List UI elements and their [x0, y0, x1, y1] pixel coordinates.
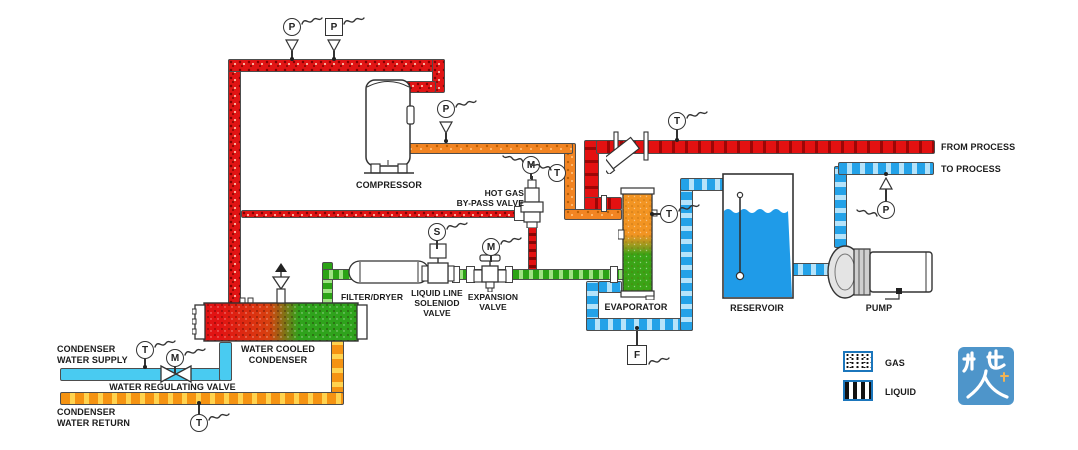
compressor: [362, 72, 418, 178]
gauge-stem: [174, 367, 176, 373]
condenser-return-label-line1: CONDENSER: [57, 407, 130, 418]
valve-motor: M: [166, 349, 184, 367]
gauge-letter: P: [289, 22, 296, 33]
capillary-squiggle: [446, 219, 468, 231]
brand-logo-calligraphy: [958, 347, 1014, 405]
condenser-return-label: CONDENSER WATER RETURN: [57, 407, 130, 429]
gauge-letter: T: [142, 345, 148, 356]
temperature-sensor: T: [660, 205, 678, 223]
gauge-letter: P: [331, 22, 338, 33]
pressure-gauge: P: [437, 100, 455, 118]
chiller-process-diagram: P P P M T S M T T P F T M: [0, 0, 1078, 450]
evaporator: [618, 186, 658, 300]
pressure-switch: P: [325, 18, 343, 36]
brand-logo: 机电人脉: [958, 347, 1014, 405]
capillary-squiggle: [686, 108, 708, 120]
suction-pipe-evaporator: [564, 209, 622, 220]
water-regulating-valve-label: WATER REGULATING VALVE: [105, 382, 240, 393]
condenser-label-line1: WATER COOLED: [236, 344, 320, 355]
capillary-squiggle: [856, 206, 878, 218]
gauge-stem: [636, 331, 638, 345]
gauge-stem: [885, 189, 887, 201]
gauge-connector-triangle: [327, 39, 341, 52]
capillary-squiggle: [208, 410, 230, 422]
capillary-squiggle: [154, 337, 176, 349]
pipe-fitting: [601, 195, 607, 212]
relief-valve: [264, 262, 298, 308]
tap-dot: [635, 326, 639, 330]
evaporator-label: EVAPORATOR: [594, 302, 678, 313]
gauge-letter: T: [674, 116, 680, 127]
condenser-return-pipe: [60, 392, 344, 405]
condenser-supply-elbow: [219, 342, 232, 381]
tap-dot: [143, 365, 147, 369]
gauge-stem: [436, 241, 438, 249]
capillary-squiggle: [530, 160, 552, 172]
gauge-connector-triangle: [879, 177, 893, 190]
tap-dot: [675, 138, 679, 142]
pump-discharge: [834, 166, 847, 248]
gauge-letter: P: [443, 104, 450, 115]
capillary-squiggle: [502, 152, 524, 164]
compressor-label: COMPRESSOR: [349, 180, 429, 191]
tap-dot: [290, 57, 294, 61]
tap-dot: [444, 139, 448, 143]
condenser-label-line2: CONDENSER: [236, 355, 320, 366]
legend-gas-swatch: [843, 351, 873, 372]
reservoir-label: RESERVOIR: [715, 303, 799, 314]
pipe-fitting: [610, 266, 618, 283]
condenser-supply-label-line1: CONDENSER: [57, 344, 128, 355]
hot-gas-bypass-label: HOT GAS BY-PASS VALVE: [438, 188, 524, 208]
gauge-letter: T: [554, 168, 560, 179]
gauge-letter: F: [634, 350, 640, 361]
gauge-stem: [490, 256, 492, 262]
condenser-return-label-line2: WATER RETURN: [57, 418, 130, 429]
gauge-connector-triangle: [439, 121, 453, 134]
hot-gas-bypass-label-line2: BY-PASS VALVE: [438, 198, 524, 208]
condenser-supply-pipe: [60, 368, 232, 381]
chilled-water-bottom: [586, 318, 693, 331]
valve-motor: M: [482, 238, 500, 256]
expansion-label-line2: VALVE: [460, 302, 526, 312]
gauge-letter: M: [487, 242, 495, 253]
capillary-squiggle: [343, 14, 365, 26]
capillary-squiggle: [301, 14, 323, 26]
pressure-gauge: P: [283, 18, 301, 36]
capillary-squiggle: [184, 345, 206, 357]
capillary-squiggle: [455, 97, 477, 109]
gauge-connector-triangle: [285, 39, 299, 52]
legend-liquid-label: LIQUID: [885, 387, 916, 398]
condenser-return-elbow: [331, 340, 344, 397]
gauge-letter: M: [171, 353, 179, 364]
gauge-letter: S: [434, 227, 441, 238]
filter-dryer-label: FILTER/DRYER: [330, 292, 414, 302]
hot-gas-bypass-label-line1: HOT GAS: [438, 188, 524, 198]
gauge-letter: P: [883, 205, 890, 216]
from-process-label: FROM PROCESS: [941, 142, 1015, 153]
condenser-label: WATER COOLED CONDENSER: [236, 344, 320, 366]
tap-dot: [650, 212, 654, 216]
solenoid-valve: [420, 242, 456, 288]
gauge-stem: [198, 404, 200, 414]
pressure-gauge: P: [877, 201, 895, 219]
legend-liquid-swatch: [843, 380, 873, 401]
pump-label: PUMP: [837, 303, 921, 314]
condenser-supply-label-line2: WATER SUPPLY: [57, 355, 128, 366]
capillary-squiggle: [648, 354, 670, 366]
expansion-label-line1: EXPANSION: [460, 292, 526, 302]
tap-dot: [884, 172, 888, 176]
gauge-letter: T: [666, 209, 672, 220]
discharge-pipe-top: [228, 59, 445, 72]
to-process-label: TO PROCESS: [941, 164, 1001, 175]
capillary-squiggle: [678, 201, 700, 213]
expansion-valve-label: EXPANSION VALVE: [460, 292, 526, 312]
y-strainer: [606, 124, 658, 174]
temperature-sensor: T: [668, 112, 686, 130]
capillary-squiggle: [500, 234, 522, 246]
temperature-sensor: T: [136, 341, 154, 359]
discharge-pipe-vertical-left: [228, 59, 241, 307]
suction-pipe-vertical: [564, 143, 576, 219]
gauge-letter: T: [196, 418, 202, 429]
suction-pipe-horizontal: [403, 143, 573, 154]
gauge-stem: [530, 174, 532, 179]
tap-dot: [332, 57, 336, 61]
hot-gas-bypass-line: [241, 210, 518, 218]
tap-dot: [197, 401, 201, 405]
solenoid-signal: S: [428, 223, 446, 241]
legend-gas-label: GAS: [885, 358, 905, 369]
flow-switch: F: [627, 345, 647, 365]
pump: [824, 240, 940, 302]
reservoir: [720, 171, 796, 301]
hot-gas-bypass-outlet: [528, 224, 537, 274]
temperature-sensor: T: [190, 414, 208, 432]
condenser-supply-label: CONDENSER WATER SUPPLY: [57, 344, 128, 366]
